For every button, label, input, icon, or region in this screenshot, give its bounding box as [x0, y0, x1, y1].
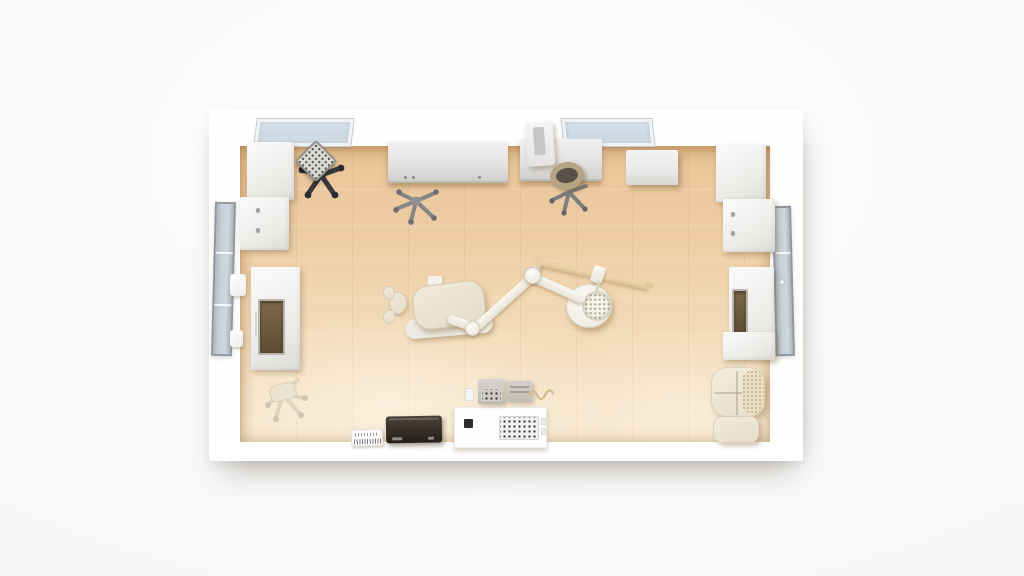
window-mullion [216, 252, 233, 254]
console-side-key [541, 428, 546, 435]
device-vent [510, 391, 529, 393]
desk-hinge [412, 176, 415, 179]
dental-lamp-lens [582, 291, 612, 321]
brochure-text-lines [355, 433, 379, 437]
office-chair-base-left [391, 183, 441, 225]
door-handle [780, 280, 784, 284]
unit-right-screen [732, 289, 748, 335]
wall-shelf [626, 150, 678, 185]
console-keypad [499, 416, 539, 440]
armchair-back-cushion [742, 370, 764, 414]
cabinet-left-upper [247, 142, 294, 200]
laptop-port [392, 437, 402, 440]
cabinet-knob [256, 228, 260, 232]
instrument-hose [528, 387, 554, 401]
arm-joint-upper [524, 267, 541, 284]
dental-chair-headrest [383, 286, 409, 326]
wall-bracket-upper [230, 274, 246, 296]
switch-plate [465, 388, 474, 401]
cabinet-left-lower [240, 197, 289, 250]
ottoman [713, 416, 759, 443]
stool-left [258, 374, 316, 426]
brochure [351, 428, 384, 446]
headrest-wing [383, 286, 395, 300]
arm-joint-elbow [465, 321, 480, 336]
laptop-port [428, 437, 434, 440]
right-wall-door [772, 206, 795, 356]
monitor-slot [533, 127, 546, 156]
headrest-wing [383, 310, 395, 324]
desk-hinge [404, 176, 407, 179]
control-console [454, 407, 547, 448]
device-vent [510, 386, 529, 388]
cabinet-right-upper [716, 145, 766, 202]
device-keypad [481, 388, 502, 401]
window-mullion [214, 304, 231, 306]
cabinet-right-lower [723, 199, 775, 252]
cabinet-knob [731, 212, 735, 216]
scene [0, 0, 1024, 576]
console-button [464, 419, 473, 428]
desk-hinge [478, 176, 481, 179]
desk-left [388, 142, 508, 183]
armchair [711, 367, 765, 417]
cabinet-right-bottom [723, 332, 775, 360]
storage-unit-left [251, 267, 300, 370]
wall-bracket-lower [230, 330, 243, 347]
rod-end-cap [533, 257, 542, 266]
cabinet-knob [256, 208, 260, 212]
laptop-hinge [389, 418, 439, 421]
stool-desk-right [544, 160, 594, 216]
laptop [386, 416, 442, 444]
unit-left-screen [258, 299, 285, 355]
device-box-left [478, 379, 505, 404]
console-side-key [541, 418, 546, 425]
cabinet-knob [731, 231, 735, 235]
unit-left-handle [255, 311, 257, 337]
door-mullion [775, 252, 790, 254]
brochure-barcode [354, 439, 381, 445]
